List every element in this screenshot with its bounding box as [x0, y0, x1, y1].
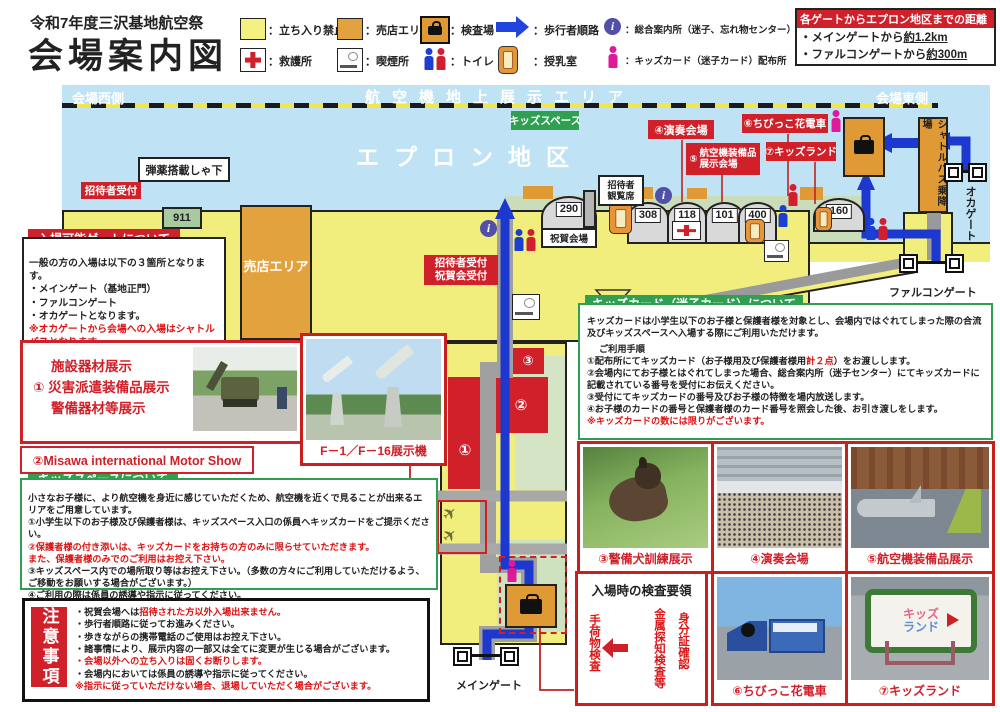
toilet-man-icon — [514, 229, 524, 253]
kidsland-photo-box: キッズ ランド ⑦キッズランド — [845, 571, 995, 706]
info-icon — [604, 18, 621, 35]
legend-label: ：授乳室 — [533, 53, 577, 69]
main-gate-post — [453, 647, 472, 666]
entry-inspection-box: 入場時の検査要領 身分証確認 金属探知検査等 手荷物検査 — [575, 571, 708, 706]
smoking-icon — [337, 48, 363, 72]
falcon-gate-post — [899, 254, 918, 273]
smoking-icon — [764, 240, 789, 262]
stall — [687, 188, 707, 199]
legend-label: ：トイレ — [450, 53, 494, 69]
static-aircraft-pen: ✈ ✈ — [437, 500, 487, 554]
inspection-title: 入場時の検査要領 — [578, 580, 705, 599]
dog-photo-caption: ③警備犬訓練展示 — [583, 548, 708, 568]
venue-block-2: ② — [494, 377, 548, 433]
nursing-room-icon — [498, 46, 518, 74]
nursing-room-icon — [815, 207, 832, 231]
inspection-step-baggage: 手荷物検査 — [586, 614, 602, 698]
sign-legs — [885, 641, 955, 665]
inspection-step-id: 身分証確認 — [675, 612, 691, 696]
kids-card-person-icon — [506, 560, 517, 584]
no-entry-icon — [240, 18, 266, 40]
concert-photo-caption: ④演奏会場 — [717, 548, 842, 568]
person-figure — [277, 387, 287, 409]
gates-info-box: 一般の方の入場は以下の３箇所となります。 ・メインゲート（基地正門） ・ファルコ… — [22, 237, 226, 344]
invite-viewing-label: 招待者観覧席 — [598, 175, 644, 206]
venue4-label: ④演奏会場 — [648, 120, 714, 139]
f1-photo-caption: F－1／F－16展示機 — [306, 440, 441, 460]
motor-show-box: ②Misawa international Motor Show — [20, 446, 254, 474]
walk-route-arrow-icon — [496, 22, 516, 32]
toilet-man-icon — [777, 205, 788, 233]
oka-gate-post — [944, 163, 963, 182]
toilet-woman-icon — [526, 229, 536, 253]
venue-west-label: 会場西側 — [72, 88, 124, 107]
aircraft-fuselage — [857, 499, 935, 517]
train-photo-box: ⑥ちびっこ花電車 — [711, 571, 848, 706]
briefcase-icon — [428, 26, 442, 35]
concert-photo-box: ④演奏会場 — [711, 441, 848, 574]
distance-main-gate: ・メインゲートから約1.2km — [797, 28, 994, 46]
apron-area-label: エプロン地区 — [300, 138, 640, 172]
venue-east-label: 会場東側 — [876, 88, 928, 107]
venue-guide-map-page: 令和7年度三沢基地航空祭 会場案内図 ：立ち入り禁止 ：売店エリア ：検査場 ：… — [0, 0, 1000, 712]
info-icon — [480, 220, 497, 237]
inspection-area-main — [505, 584, 557, 628]
venue6-label: ⑥ちびっこ花電車 — [742, 114, 828, 133]
excavator-tracks — [223, 399, 257, 407]
kids-space-label: キッズスペース — [511, 111, 579, 130]
page-title: 会場案内図 — [28, 28, 228, 79]
falcon-gate-label: ファルコンゲート — [889, 284, 977, 300]
f1-f16-photo-box: F－1／F－16展示機 — [300, 333, 447, 466]
hangar-roof-trusses — [851, 447, 989, 489]
dog-ear — [639, 457, 647, 468]
legend-label: ：喫煙所 — [365, 53, 409, 69]
kids-card-person-icon — [607, 46, 618, 72]
dog-photo-box: ③警備犬訓練展示 — [577, 441, 714, 574]
building-911: 911 — [162, 207, 202, 229]
inspection-arrow-head — [602, 638, 613, 658]
inspection-arrow-shaft — [612, 644, 628, 652]
train-front-wheel — [741, 623, 755, 637]
nursing-room-icon — [745, 219, 765, 243]
facility-exhibit-box: 施設器材展示 ① 災害派遣装備品展示 警備器材等展示 — [20, 340, 304, 444]
aircraft-silhouette-icon: ✈ — [438, 502, 462, 527]
photo-kids-train — [717, 577, 842, 680]
toilet-woman-icon — [878, 218, 888, 242]
toilet-man-icon — [866, 218, 876, 242]
equipment-photo-box: ⑤航空機装備品展示 — [845, 441, 995, 574]
legend-label: ：歩行者順路 — [533, 22, 599, 38]
distance-box-title: 各ゲートからエプロン地区までの距離 — [797, 10, 994, 28]
distance-falcon-gate: ・ファルコンゲートから約300m — [797, 46, 994, 62]
vendor-area-icon — [337, 18, 363, 40]
walk-route-arrowhead — [516, 16, 529, 38]
first-aid-icon — [672, 221, 701, 240]
equipment-photo-caption: ⑤航空機装備品展示 — [851, 548, 989, 568]
kids-card-info-box: キッズカードは小学生以下のお子様と保護者様を対象とし、会場内ではぐれてしまった際… — [578, 303, 993, 440]
inspection-step-metal: 金属探知検査等 — [651, 608, 667, 698]
photo-facility-exhibit — [193, 347, 297, 431]
stall — [523, 186, 553, 199]
sign-arrow — [947, 613, 959, 627]
oka-gate-label: オカゲート — [962, 186, 978, 262]
woman-figure-icon — [788, 184, 798, 208]
tower-structure — [583, 190, 596, 228]
inspection-icon — [420, 16, 450, 44]
photo-concert-venue — [717, 447, 842, 548]
air-display-area-label: 航空機地上展示エリア — [310, 86, 690, 107]
venue7-label: ⑦キッズランド — [766, 142, 836, 161]
vendor-area-label: 売店エリア — [242, 256, 310, 275]
invite-reception-label: 招待者受付 — [81, 182, 141, 199]
stall — [800, 187, 823, 200]
hangar-308: 308 — [627, 202, 669, 244]
nursing-room-icon — [609, 203, 632, 234]
kids-space-info-box: 小さなお子様に、より航空機を身近に感じていただくため、航空機を近くで見ることが出… — [20, 478, 438, 590]
train-photo-caption: ⑥ちびっこ花電車 — [717, 680, 842, 700]
toilet-man-icon — [424, 48, 434, 72]
hangar-back-wall — [717, 481, 842, 493]
toilet-woman-icon — [436, 48, 446, 72]
excavator-body — [221, 377, 259, 401]
main-gate-label: メインゲート — [456, 677, 522, 693]
celebration-hall-label: 祝賀会場 — [541, 228, 597, 248]
train-windows — [773, 623, 817, 632]
briefcase-icon — [520, 599, 542, 614]
photo-guard-dog — [583, 447, 708, 548]
venue5-label: ⑤ 航空機装備品展示会場 — [686, 143, 760, 175]
kids-card-person-icon — [830, 110, 841, 134]
invite-celebration-reception-label: 招待者受付祝賀会受付 — [424, 255, 498, 285]
legend-label: ：総合案内所（迷子、忘れ物センター） — [625, 22, 796, 36]
photo-aircraft-equipment — [851, 447, 989, 548]
legend-label: ：キッズカード（迷子カード）配布所 — [625, 53, 787, 67]
main-gate-post — [500, 647, 519, 666]
oka-gate-post — [968, 163, 987, 182]
gate-distance-box: 各ゲートからエプロン地区までの距離 ・メインゲートから約1.2km ・ファルコン… — [795, 8, 996, 66]
legend-label: ：検査場 — [450, 22, 494, 38]
briefcase-icon — [854, 140, 874, 154]
caution-title: 注意事項 — [31, 607, 67, 687]
photo-kidsland-sign: キッズ ランド — [851, 577, 989, 680]
first-aid-icon — [240, 48, 266, 72]
hangar-ceiling — [717, 447, 842, 481]
venue-block-3: ③ — [512, 348, 544, 374]
info-icon — [655, 187, 672, 204]
photo-f1-f16 — [306, 339, 441, 440]
legend-label: ：救護所 — [268, 53, 312, 69]
venue-block-1: ① — [448, 377, 482, 489]
ammo-shelter-label: 弾薬搭載しゃ下 — [138, 157, 230, 182]
legend-label: ：立ち入り禁止 — [268, 22, 345, 38]
aircraft-silhouette-icon: ✈ — [438, 524, 462, 549]
caution-box: 注意事項 ・祝賀会場へは招待された方以外入場出来ません。 ・歩行者順路に従ってお… — [22, 598, 430, 702]
kidsland-photo-caption: ⑦キッズランド — [851, 680, 989, 700]
smoking-icon — [512, 294, 540, 320]
inspection-area-topright — [843, 117, 885, 177]
